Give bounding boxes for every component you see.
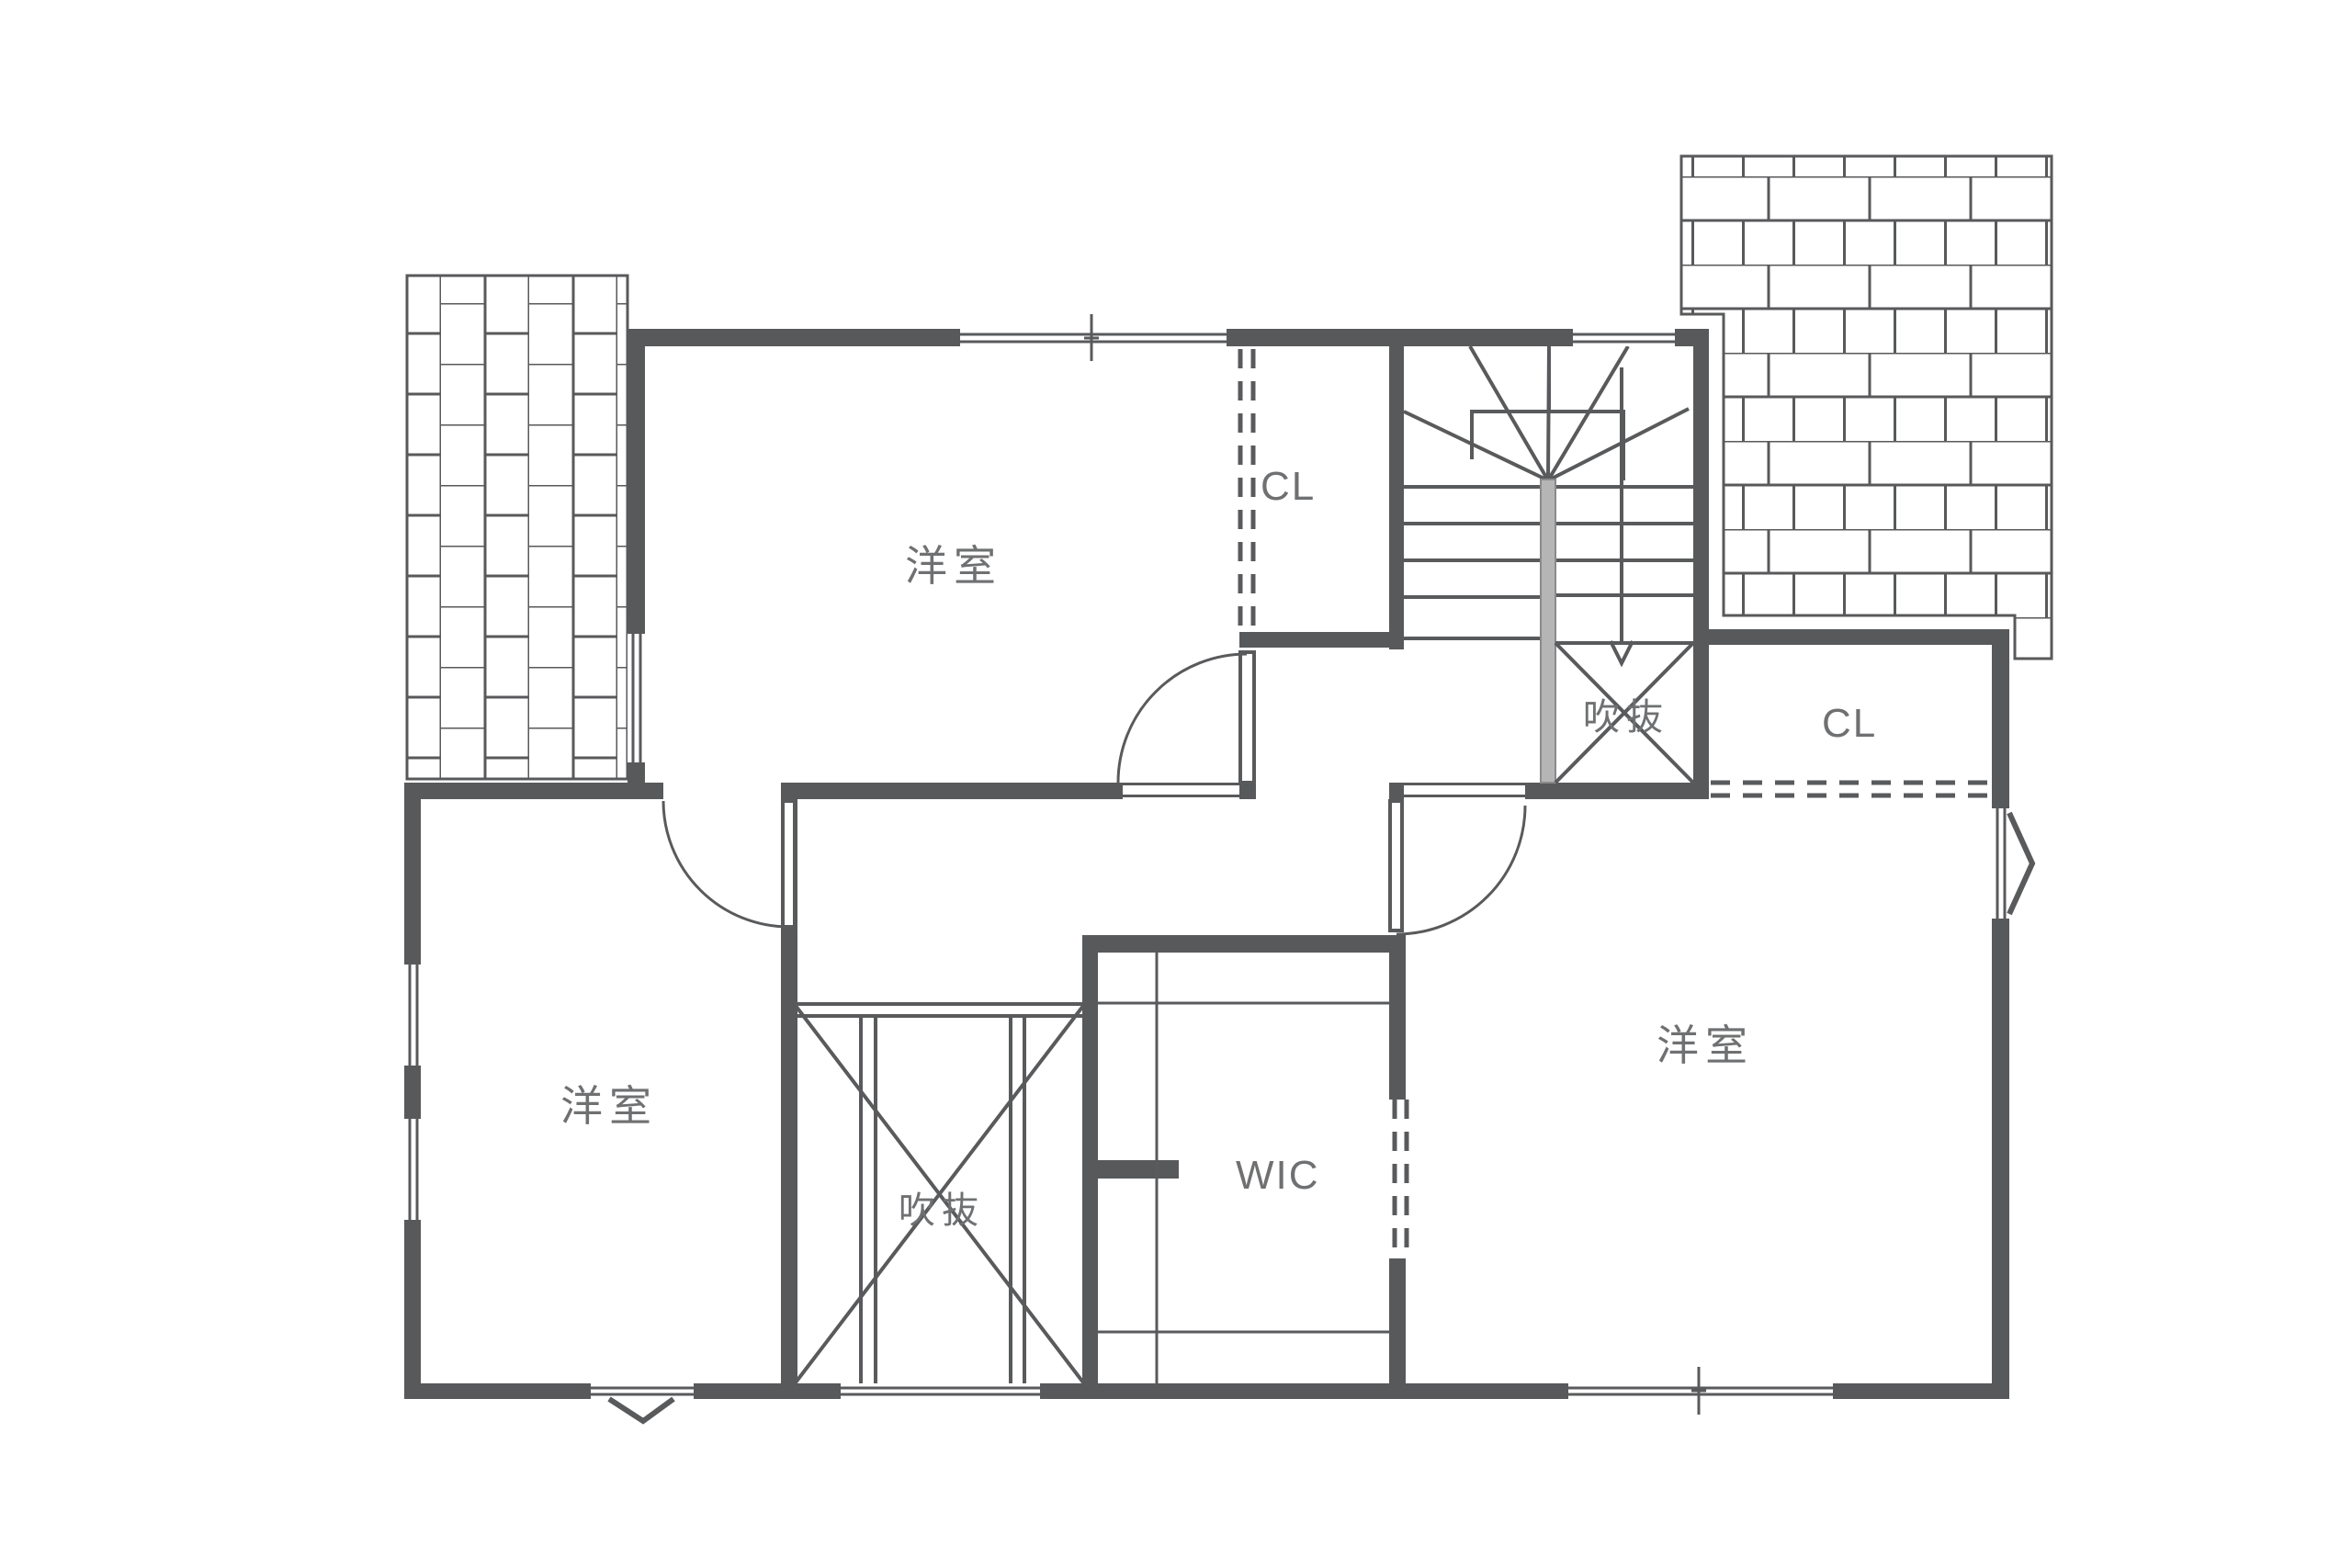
void-top-lines (796, 1004, 1084, 1016)
wall-bottom-3 (1040, 1383, 1568, 1399)
roof-hatch-area (1681, 156, 2052, 659)
wall-br-west-lower (1389, 1258, 1406, 1399)
wall-bottom-4 (1833, 1383, 2009, 1399)
wic-open-front (1395, 1100, 1407, 1258)
wall-hall-b (781, 783, 1123, 799)
wall-toproom-left-upper (628, 329, 645, 634)
label-bedroom-top: 洋室 (905, 542, 1002, 590)
top-door-leaf (1240, 652, 1254, 783)
label-closet-top: CL (1261, 464, 1316, 509)
label-bedroom-bottom-left: 洋室 (560, 1082, 658, 1130)
roof-hatch-top-right (1681, 156, 2052, 659)
label-void-stairwell: 吹抜 (1583, 697, 1669, 738)
bl-door-leaf (783, 801, 795, 927)
wall-top-1 (628, 329, 960, 346)
wall-cl-top-bottom (1239, 632, 1389, 648)
window-bottom3-mullion (1691, 1367, 1706, 1415)
wall-wic-stub (1098, 1160, 1179, 1179)
wall-right-lower (1992, 919, 2009, 1399)
wall-left-3 (404, 1220, 421, 1399)
wall-wic-west (1082, 953, 1098, 1399)
wall-wic-north (1082, 935, 1406, 953)
label-walk-in-closet: WIC (1236, 1153, 1320, 1198)
bl-door-swing-arc (663, 801, 789, 927)
window-bottom2-frame (841, 1383, 1040, 1399)
wall-hall-c2 (1525, 783, 1709, 799)
stair-treads-right (1555, 487, 1693, 595)
floor-plan-page: 洋室 洋室 洋室 CL CL 吹抜 吹抜 WIC (0, 0, 2352, 1568)
wall-cl-right-top (1709, 629, 2009, 645)
wall-right-upper (1992, 643, 2009, 808)
room-labels: 洋室 洋室 洋室 CL CL 吹抜 吹抜 WIC (560, 464, 1877, 1231)
wall-stair-left (1389, 333, 1404, 649)
br-door-swing-arc (1396, 806, 1525, 934)
stair-newel-rail (1541, 479, 1555, 783)
wall-hall-post (1239, 783, 1256, 799)
label-bedroom-bottom-right: 洋室 (1657, 1021, 1754, 1069)
stair-treads-left (1404, 487, 1541, 638)
wall-br-west-upper (1389, 953, 1406, 1100)
window-right-casement-icon (2009, 813, 2032, 914)
window-bottom1-casement-icon (609, 1399, 673, 1421)
wall-left-2 (404, 1066, 421, 1119)
top-door-sill (1123, 784, 1239, 796)
top-door-swing-arc (1118, 654, 1247, 783)
window-toproom-left-frame (628, 634, 645, 762)
label-closet-right: CL (1822, 701, 1877, 746)
br-door-leaf (1390, 801, 1402, 931)
roof-hatch-area (407, 276, 628, 779)
cl-right-open-front (1711, 783, 1992, 795)
wall-hall-c1 (1389, 783, 1404, 799)
window-stair-frame (1573, 329, 1675, 346)
wall-stair-right (1693, 333, 1709, 799)
roof-hatch-top-left (407, 276, 628, 779)
floor-plan-drawing: 洋室 洋室 洋室 CL CL 吹抜 吹抜 WIC (0, 0, 2352, 1568)
br-door-sill (1404, 784, 1525, 796)
cl-top-open-front (1240, 349, 1253, 629)
wall-bottom-2 (694, 1383, 841, 1399)
window-bottom1-frame (591, 1383, 694, 1399)
window-top-mullion (1084, 314, 1099, 361)
wall-hall-a (404, 783, 663, 799)
label-void-center: 吹抜 (899, 1190, 985, 1231)
wall-left-1 (404, 783, 421, 964)
window-right-frame (1992, 808, 2009, 919)
wall-bottom-1 (404, 1383, 591, 1399)
